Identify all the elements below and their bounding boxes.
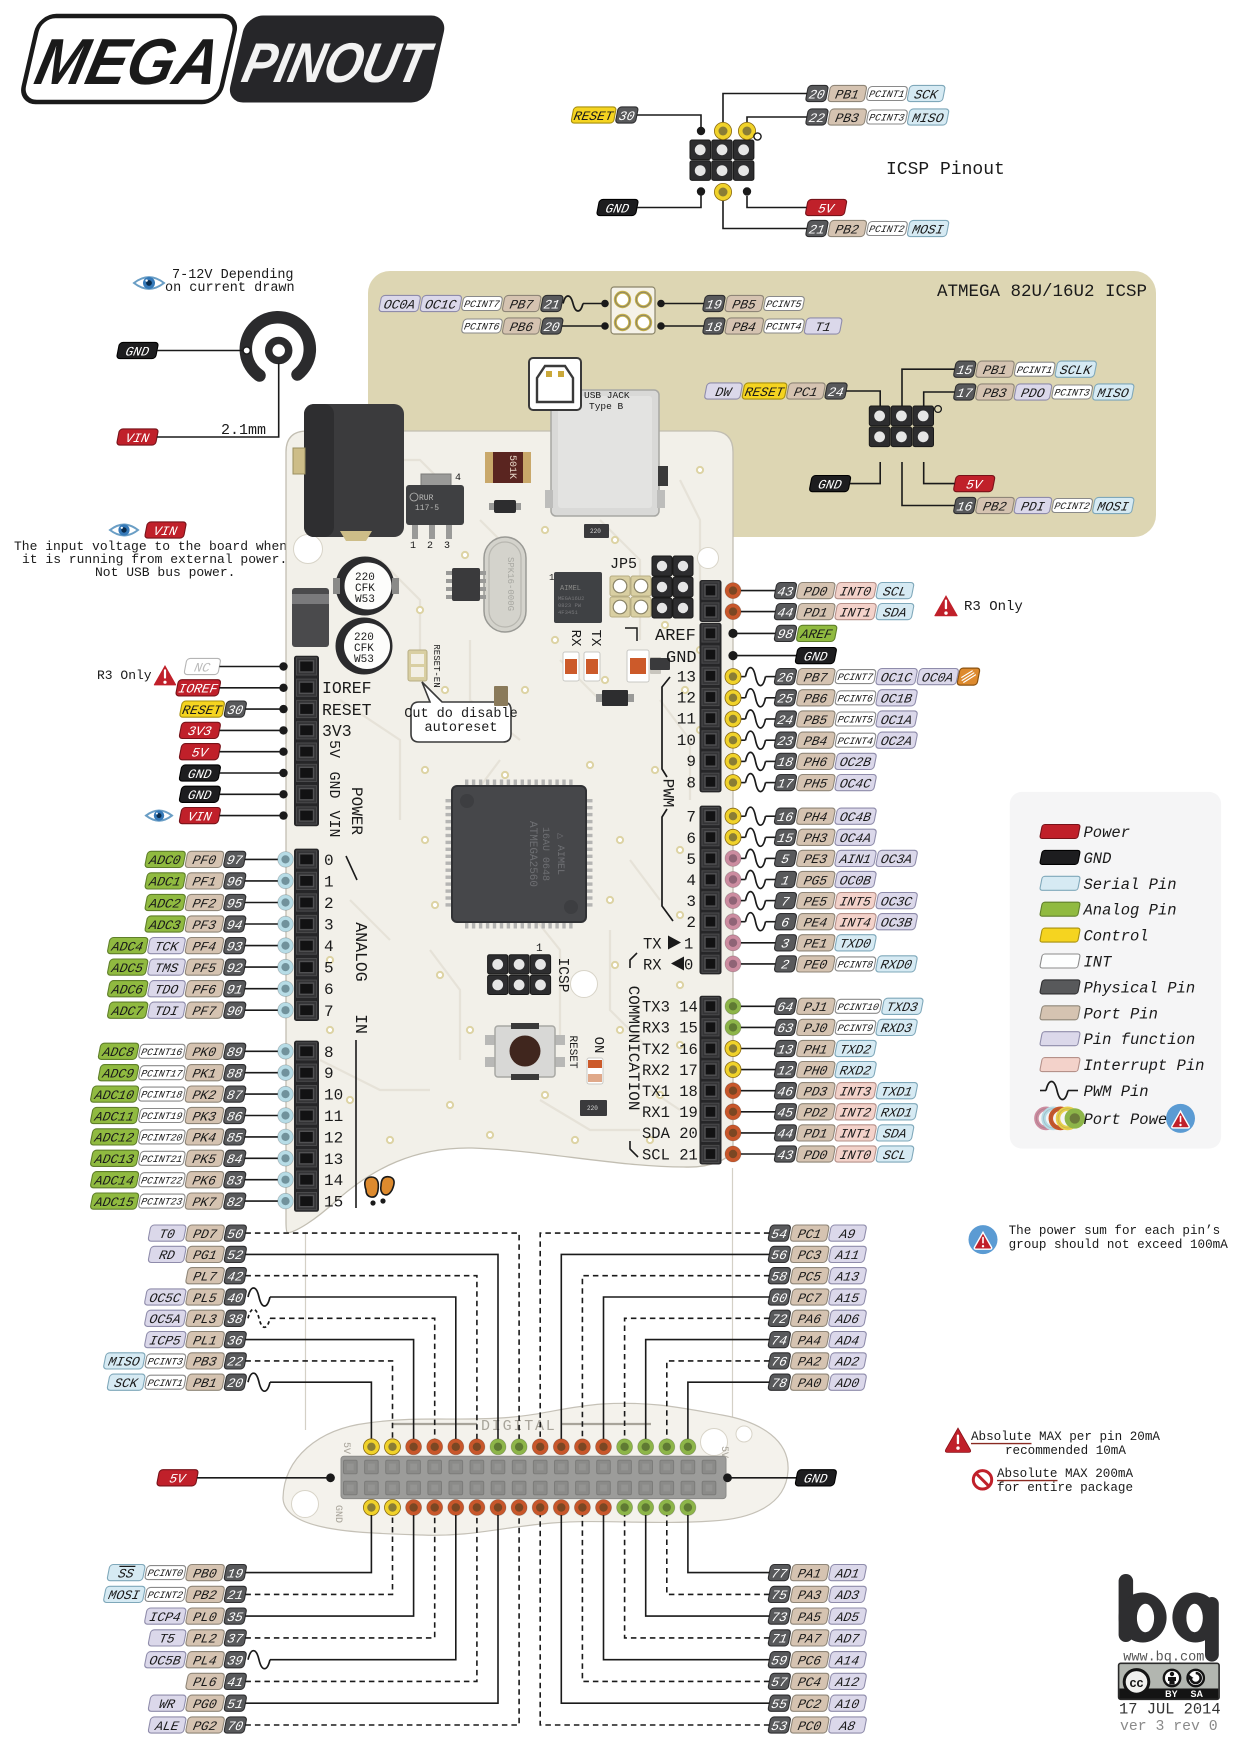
- svg-text:57: 57: [770, 1675, 789, 1690]
- svg-text:39: 39: [226, 1654, 245, 1669]
- svg-text:PCINT19: PCINT19: [140, 1111, 183, 1122]
- svg-text:OC3B: OC3B: [879, 916, 913, 931]
- svg-text:OC0A: OC0A: [921, 671, 955, 686]
- svg-text:PD7: PD7: [192, 1227, 218, 1242]
- svg-text:PB2: PB2: [982, 499, 1008, 514]
- svg-text:13: 13: [324, 1151, 343, 1169]
- svg-text:PF6: PF6: [191, 983, 217, 998]
- svg-text:3V3: 3V3: [187, 724, 213, 739]
- svg-text:PK4: PK4: [191, 1131, 217, 1146]
- svg-text:PK6: PK6: [191, 1174, 217, 1189]
- svg-text:TX1 18: TX1 18: [642, 1083, 698, 1101]
- svg-text:PK3: PK3: [191, 1109, 217, 1124]
- svg-text:PCINT8: PCINT8: [837, 960, 874, 971]
- svg-text:3: 3: [444, 541, 450, 552]
- svg-text:ADC5: ADC5: [109, 961, 144, 976]
- svg-text:11: 11: [677, 711, 696, 729]
- svg-text:PCINT5: PCINT5: [765, 299, 802, 310]
- svg-text:OC3C: OC3C: [879, 895, 913, 910]
- svg-text:PA4: PA4: [796, 1334, 822, 1349]
- svg-text:PG5: PG5: [802, 873, 828, 888]
- svg-text:PCINT2: PCINT2: [1053, 501, 1090, 512]
- svg-text:VIN: VIN: [152, 524, 178, 539]
- svg-text:RX1 19: RX1 19: [642, 1104, 698, 1122]
- svg-text:T0: T0: [158, 1227, 177, 1242]
- svg-text:82: 82: [225, 1195, 244, 1210]
- svg-text:PINOUT: PINOUT: [237, 33, 439, 95]
- svg-text:ADC2: ADC2: [147, 896, 182, 911]
- svg-text:W53: W53: [354, 654, 374, 666]
- svg-text:78: 78: [770, 1376, 789, 1391]
- svg-text:15: 15: [955, 363, 974, 378]
- svg-text:ATMEGA2560: ATMEGA2560: [526, 821, 538, 887]
- svg-text:86: 86: [225, 1109, 244, 1124]
- svg-text:RD: RD: [158, 1248, 177, 1263]
- svg-text:6: 6: [686, 830, 696, 848]
- svg-text:PK0: PK0: [191, 1045, 217, 1060]
- svg-text:1: 1: [536, 943, 543, 955]
- svg-text:85: 85: [225, 1131, 244, 1146]
- svg-text:MEGA16U2: MEGA16U2: [558, 595, 584, 602]
- svg-text:SDA: SDA: [882, 1127, 908, 1142]
- svg-text:A12: A12: [833, 1675, 860, 1690]
- svg-text:TCK: TCK: [153, 940, 180, 955]
- svg-text:OC2A: OC2A: [879, 734, 913, 749]
- svg-text:ICSP Pinout: ICSP Pinout: [886, 160, 1005, 180]
- svg-text:PH6: PH6: [802, 755, 828, 770]
- svg-text:20: 20: [226, 1376, 245, 1391]
- svg-text:PCINT2: PCINT2: [868, 224, 905, 235]
- svg-text:84: 84: [225, 1152, 244, 1167]
- svg-text:PB3: PB3: [192, 1355, 218, 1370]
- svg-text:18: 18: [776, 755, 795, 770]
- svg-text:PG2: PG2: [192, 1719, 218, 1734]
- svg-text:24: 24: [776, 713, 795, 728]
- svg-text:PA3: PA3: [796, 1588, 822, 1603]
- svg-text:A14: A14: [833, 1654, 860, 1669]
- svg-text:RXD3: RXD3: [879, 1021, 913, 1036]
- svg-text:PL2: PL2: [192, 1632, 218, 1647]
- svg-text:group should not exceed 100mA: group should not exceed 100mA: [1009, 1238, 1229, 1252]
- svg-text:PA2: PA2: [796, 1355, 822, 1370]
- svg-text:IOREF: IOREF: [322, 679, 372, 698]
- svg-text:PH3: PH3: [802, 831, 828, 846]
- svg-text:PCINT17: PCINT17: [140, 1068, 183, 1079]
- svg-text:24: 24: [827, 385, 846, 400]
- svg-text:PB5: PB5: [802, 713, 828, 728]
- svg-text:A8: A8: [837, 1719, 857, 1734]
- svg-text:RXD1: RXD1: [880, 1106, 914, 1121]
- svg-text:RXD2: RXD2: [838, 1064, 872, 1079]
- svg-text:PK1: PK1: [191, 1067, 217, 1082]
- svg-text:PC1: PC1: [793, 385, 819, 400]
- svg-text:PL6: PL6: [192, 1675, 218, 1690]
- svg-text:71: 71: [770, 1632, 788, 1647]
- svg-text:87: 87: [225, 1088, 244, 1103]
- svg-text:0: 0: [684, 957, 693, 975]
- svg-text:PA5: PA5: [796, 1610, 822, 1625]
- svg-text:PCINT4: PCINT4: [837, 736, 874, 747]
- svg-text:1: 1: [410, 541, 416, 552]
- svg-text:INT5: INT5: [838, 895, 872, 910]
- svg-text:SDA 20: SDA 20: [642, 1125, 698, 1143]
- svg-text:55: 55: [770, 1697, 789, 1712]
- svg-text:PD3: PD3: [802, 1085, 828, 1100]
- svg-text:for entire package: for entire package: [997, 1481, 1133, 1495]
- svg-text:MISO: MISO: [911, 111, 945, 126]
- svg-text:PD0: PD0: [802, 1148, 828, 1163]
- svg-text:TXD0: TXD0: [838, 937, 872, 952]
- svg-text:15: 15: [776, 831, 795, 846]
- svg-text:AIN1: AIN1: [837, 852, 872, 867]
- svg-text:PF7: PF7: [191, 1004, 217, 1019]
- svg-text:ICSP: ICSP: [554, 958, 570, 993]
- svg-text:PCINT23: PCINT23: [140, 1197, 183, 1208]
- svg-text:PB7: PB7: [802, 671, 828, 686]
- svg-text:52: 52: [226, 1248, 245, 1263]
- svg-text:18: 18: [705, 320, 724, 335]
- svg-text:OC2B: OC2B: [838, 755, 872, 770]
- svg-text:ICP4: ICP4: [148, 1610, 182, 1625]
- svg-text:15: 15: [324, 1194, 343, 1212]
- svg-text:AREF: AREF: [798, 627, 833, 642]
- svg-text:TDO: TDO: [153, 983, 179, 998]
- svg-text:21: 21: [808, 222, 826, 237]
- svg-text:PB2: PB2: [834, 222, 860, 237]
- svg-text:ADC12: ADC12: [92, 1131, 135, 1146]
- svg-text:PK7: PK7: [191, 1195, 217, 1210]
- svg-text:40: 40: [226, 1291, 245, 1306]
- svg-text:AD0: AD0: [833, 1376, 860, 1391]
- svg-text:PDI: PDI: [1020, 499, 1046, 514]
- svg-text:PD1: PD1: [802, 1127, 828, 1142]
- svg-text:AD3: AD3: [833, 1588, 860, 1603]
- svg-text:PCINT1: PCINT1: [1016, 365, 1053, 376]
- svg-text:72: 72: [770, 1312, 789, 1327]
- svg-text:OC1C: OC1C: [424, 297, 458, 312]
- svg-text:2: 2: [686, 914, 696, 932]
- svg-text:AD6: AD6: [833, 1312, 860, 1327]
- svg-text:ADC0: ADC0: [147, 853, 182, 868]
- svg-text:Absolute MAX 200mA: Absolute MAX 200mA: [997, 1467, 1133, 1481]
- svg-text:PB7: PB7: [508, 297, 534, 312]
- svg-text:AD4: AD4: [833, 1334, 860, 1349]
- svg-text:AD1: AD1: [833, 1567, 860, 1582]
- svg-text:PF4: PF4: [191, 940, 217, 955]
- svg-text:T1: T1: [814, 320, 832, 335]
- svg-text:PC2: PC2: [796, 1697, 822, 1712]
- svg-text:PC6: PC6: [796, 1654, 822, 1669]
- svg-text:43: 43: [776, 585, 795, 600]
- svg-text:GND: GND: [666, 649, 697, 668]
- svg-text:PCINT1: PCINT1: [868, 89, 905, 100]
- svg-text:autoreset: autoreset: [425, 721, 498, 736]
- svg-text:17 JUL 2014: 17 JUL 2014: [1119, 1701, 1221, 1719]
- svg-text:PF5: PF5: [191, 961, 217, 976]
- svg-text:Control: Control: [1084, 928, 1149, 946]
- svg-text:SCLK: SCLK: [1059, 363, 1094, 378]
- svg-text:OC1B: OC1B: [879, 692, 913, 707]
- svg-text:MISO: MISO: [107, 1355, 141, 1370]
- svg-text:RESET: RESET: [743, 385, 786, 400]
- svg-text:VIN: VIN: [187, 810, 213, 825]
- svg-text:53: 53: [770, 1719, 789, 1734]
- svg-text:TX2 16: TX2 16: [642, 1041, 698, 1059]
- svg-text:83: 83: [225, 1174, 244, 1189]
- svg-text:NC: NC: [193, 660, 212, 675]
- svg-text:PCINT1: PCINT1: [147, 1378, 184, 1389]
- svg-text:PWM Pin: PWM Pin: [1084, 1083, 1149, 1101]
- svg-text:59: 59: [770, 1654, 789, 1669]
- svg-text:A13: A13: [833, 1270, 860, 1285]
- svg-text:91: 91: [225, 983, 243, 998]
- svg-text:36: 36: [226, 1334, 245, 1349]
- svg-text:Serial Pin: Serial Pin: [1084, 876, 1177, 894]
- svg-text:OC1A: OC1A: [879, 713, 913, 728]
- svg-text:PCINT22: PCINT22: [140, 1175, 183, 1186]
- svg-text:220: 220: [590, 528, 601, 535]
- svg-text:PCINT2: PCINT2: [147, 1590, 184, 1601]
- svg-text:ADC1: ADC1: [147, 875, 182, 890]
- svg-text:1: 1: [324, 873, 334, 891]
- svg-text:Pin function: Pin function: [1084, 1031, 1196, 1049]
- svg-text:PB3: PB3: [834, 111, 860, 126]
- svg-text:OC5C: OC5C: [148, 1291, 182, 1306]
- svg-text:89: 89: [225, 1045, 244, 1060]
- svg-text:92: 92: [225, 961, 244, 976]
- svg-text:RX2 17: RX2 17: [642, 1062, 698, 1080]
- svg-text:22: 22: [226, 1355, 245, 1370]
- svg-text:3: 3: [686, 893, 696, 911]
- svg-text:60: 60: [770, 1291, 789, 1306]
- svg-text:5: 5: [686, 851, 696, 869]
- svg-text:13: 13: [677, 668, 696, 686]
- svg-text:PA1: PA1: [796, 1567, 822, 1582]
- svg-text:3V3: 3V3: [322, 722, 352, 741]
- svg-text:ADC10: ADC10: [92, 1088, 135, 1103]
- svg-text:43: 43: [776, 1148, 795, 1163]
- svg-text:AREF: AREF: [655, 627, 696, 646]
- svg-text:22: 22: [808, 111, 827, 126]
- svg-text:88: 88: [225, 1067, 244, 1082]
- svg-text:cc: cc: [1130, 1676, 1144, 1690]
- svg-text:56: 56: [770, 1248, 789, 1263]
- svg-text:PH5: PH5: [802, 777, 828, 792]
- svg-text:PCINT9: PCINT9: [837, 1023, 874, 1034]
- svg-text:POWER: POWER: [347, 787, 365, 835]
- svg-text:W53: W53: [355, 594, 375, 606]
- svg-text:SPK16-000G: SPK16-000G: [505, 557, 515, 611]
- svg-text:GND: GND: [1084, 850, 1112, 868]
- svg-text:OC4B: OC4B: [838, 810, 872, 825]
- svg-text:PC5: PC5: [796, 1270, 822, 1285]
- svg-text:2: 2: [427, 541, 433, 552]
- svg-text:PA7: PA7: [796, 1632, 822, 1647]
- svg-text:ADC14: ADC14: [92, 1174, 135, 1189]
- svg-text:RESET: RESET: [322, 701, 372, 720]
- svg-text:MOSI: MOSI: [107, 1588, 141, 1603]
- svg-text:SCK: SCK: [913, 87, 940, 102]
- svg-text:The power sum for each pin’s: The power sum for each pin’s: [1009, 1224, 1221, 1238]
- svg-text:10: 10: [677, 732, 696, 750]
- svg-text:95: 95: [225, 896, 244, 911]
- svg-text:16: 16: [955, 499, 974, 514]
- svg-text:RX: RX: [643, 957, 662, 975]
- svg-text:PB0: PB0: [192, 1567, 218, 1582]
- svg-text:Power: Power: [1084, 824, 1131, 842]
- svg-text:AIMEL: AIMEL: [560, 585, 581, 593]
- svg-text:Port Pin: Port Pin: [1084, 1005, 1158, 1023]
- svg-text:45: 45: [776, 1106, 795, 1121]
- svg-text:97: 97: [225, 853, 244, 868]
- svg-text:PB5: PB5: [731, 297, 757, 312]
- svg-text:JP5: JP5: [610, 556, 637, 573]
- svg-text:PCINT20: PCINT20: [140, 1133, 183, 1144]
- svg-text:26: 26: [776, 671, 795, 686]
- svg-text:PL4: PL4: [192, 1654, 218, 1669]
- svg-text:GND: GND: [803, 650, 829, 665]
- svg-text:T5: T5: [158, 1632, 177, 1647]
- svg-text:5V: 5V: [718, 1446, 729, 1458]
- svg-text:PB4: PB4: [802, 734, 828, 749]
- svg-text:INT1: INT1: [838, 1127, 872, 1142]
- svg-text:Cut do disable: Cut do disable: [404, 707, 517, 722]
- svg-text:PCINT18: PCINT18: [140, 1090, 183, 1101]
- svg-text:A15: A15: [833, 1291, 860, 1306]
- svg-text:PC1: PC1: [796, 1227, 822, 1242]
- svg-text:PCINT7: PCINT7: [837, 672, 874, 683]
- svg-text:PK2: PK2: [191, 1088, 217, 1103]
- svg-text:16AU 0648: 16AU 0648: [539, 827, 550, 881]
- svg-text:PL7: PL7: [192, 1270, 218, 1285]
- svg-text:PA6: PA6: [796, 1312, 822, 1327]
- svg-text:5: 5: [324, 960, 334, 978]
- svg-text:PCINT4: PCINT4: [765, 322, 802, 333]
- svg-text:ON: ON: [590, 1037, 606, 1054]
- svg-text:INT0: INT0: [838, 585, 872, 600]
- svg-text:GND: GND: [124, 344, 150, 359]
- svg-text:51: 51: [226, 1697, 244, 1712]
- svg-text:PC4: PC4: [796, 1675, 822, 1690]
- svg-text:17: 17: [955, 386, 974, 401]
- svg-text:BY: BY: [1165, 1689, 1178, 1699]
- svg-text:35: 35: [226, 1610, 245, 1625]
- svg-text:PA0: PA0: [796, 1376, 822, 1391]
- svg-text:OC5B: OC5B: [148, 1654, 182, 1669]
- svg-text:INT: INT: [1084, 954, 1113, 972]
- svg-text:PE4: PE4: [802, 916, 828, 931]
- svg-text:98: 98: [776, 627, 795, 642]
- svg-text:PCINT6: PCINT6: [463, 322, 500, 333]
- svg-text:PDO: PDO: [1020, 386, 1046, 401]
- svg-text:PB2: PB2: [192, 1588, 218, 1603]
- svg-text:PF3: PF3: [191, 918, 217, 933]
- svg-text:ANALOG: ANALOG: [351, 922, 370, 981]
- svg-text:ATMEGA 82U/16U2 ICSP: ATMEGA 82U/16U2 ICSP: [937, 282, 1147, 302]
- svg-text:VIN: VIN: [325, 810, 342, 837]
- svg-text:GND: GND: [817, 478, 843, 493]
- svg-text:23: 23: [776, 734, 795, 749]
- svg-text:19: 19: [226, 1567, 245, 1582]
- svg-text:PJ1: PJ1: [802, 1000, 828, 1015]
- svg-text:ADC3: ADC3: [147, 918, 182, 933]
- svg-text:PB4: PB4: [731, 320, 757, 335]
- svg-text:12: 12: [776, 1064, 795, 1079]
- svg-text:GND: GND: [187, 767, 213, 782]
- svg-text:12: 12: [677, 690, 696, 708]
- svg-text:R3 Only: R3 Only: [97, 668, 152, 683]
- svg-text:PCINT3: PCINT3: [1053, 388, 1090, 399]
- svg-text:IOREF: IOREF: [177, 682, 219, 697]
- svg-text:INT3: INT3: [838, 1085, 872, 1100]
- svg-text:94: 94: [225, 918, 244, 933]
- svg-text:Physical Pin: Physical Pin: [1084, 979, 1196, 997]
- svg-text:TDI: TDI: [153, 1004, 179, 1019]
- svg-text:RUR: RUR: [419, 494, 434, 503]
- svg-text:RESET: RESET: [572, 109, 615, 124]
- svg-text:44: 44: [776, 1127, 795, 1142]
- svg-text:OC1C: OC1C: [879, 671, 913, 686]
- svg-text:7: 7: [686, 809, 696, 827]
- svg-text:A9: A9: [837, 1227, 857, 1242]
- svg-text:37: 37: [226, 1632, 245, 1647]
- svg-text:PE1: PE1: [802, 937, 828, 952]
- svg-text:PB3: PB3: [982, 386, 1008, 401]
- svg-text:PCINT21: PCINT21: [140, 1154, 183, 1165]
- svg-text:17: 17: [776, 777, 795, 792]
- svg-text:5V: 5V: [325, 740, 342, 758]
- svg-text:70: 70: [226, 1719, 245, 1734]
- svg-text:PH1: PH1: [802, 1042, 828, 1057]
- svg-text:3: 3: [324, 917, 334, 935]
- svg-text:PCINT16: PCINT16: [140, 1047, 183, 1058]
- svg-text:AD7: AD7: [833, 1632, 860, 1647]
- svg-text:Absolute MAX per pin 20mA: Absolute MAX per pin 20mA: [971, 1430, 1160, 1444]
- svg-text:PF2: PF2: [191, 896, 217, 911]
- svg-text:58: 58: [770, 1270, 789, 1285]
- svg-text:12: 12: [324, 1129, 343, 1147]
- svg-text:Interrupt Pin: Interrupt Pin: [1084, 1057, 1205, 1075]
- svg-text:A10: A10: [833, 1697, 860, 1712]
- svg-text:75: 75: [770, 1588, 789, 1603]
- svg-text:7: 7: [324, 1003, 334, 1021]
- svg-text:TMS: TMS: [153, 961, 179, 976]
- svg-text:PB1: PB1: [982, 363, 1008, 378]
- svg-text:USB JACK: USB JACK: [584, 390, 630, 401]
- svg-text:PH0: PH0: [802, 1064, 828, 1079]
- svg-text:PL3: PL3: [192, 1312, 218, 1327]
- svg-text:ICP5: ICP5: [148, 1334, 182, 1349]
- svg-text:SDA: SDA: [882, 606, 908, 621]
- svg-text:19: 19: [705, 297, 724, 312]
- svg-text:OC0A: OC0A: [382, 297, 416, 312]
- svg-text:PB6: PB6: [508, 320, 534, 335]
- svg-text:20: 20: [542, 320, 561, 335]
- svg-text:10: 10: [324, 1087, 343, 1105]
- svg-text:A11: A11: [833, 1248, 860, 1263]
- svg-text:PD1: PD1: [802, 606, 828, 621]
- svg-text:2: 2: [324, 895, 334, 913]
- svg-text:ADC11: ADC11: [92, 1109, 135, 1124]
- svg-text:ALE: ALE: [153, 1719, 180, 1734]
- svg-text:INT2: INT2: [838, 1106, 872, 1121]
- svg-text:46: 46: [776, 1085, 795, 1100]
- svg-text:TX: TX: [643, 936, 662, 954]
- svg-text:AD2: AD2: [833, 1355, 860, 1370]
- svg-text:96: 96: [225, 875, 244, 890]
- svg-text:R3 Only: R3 Only: [964, 599, 1023, 615]
- svg-text:ADC7: ADC7: [109, 1004, 144, 1019]
